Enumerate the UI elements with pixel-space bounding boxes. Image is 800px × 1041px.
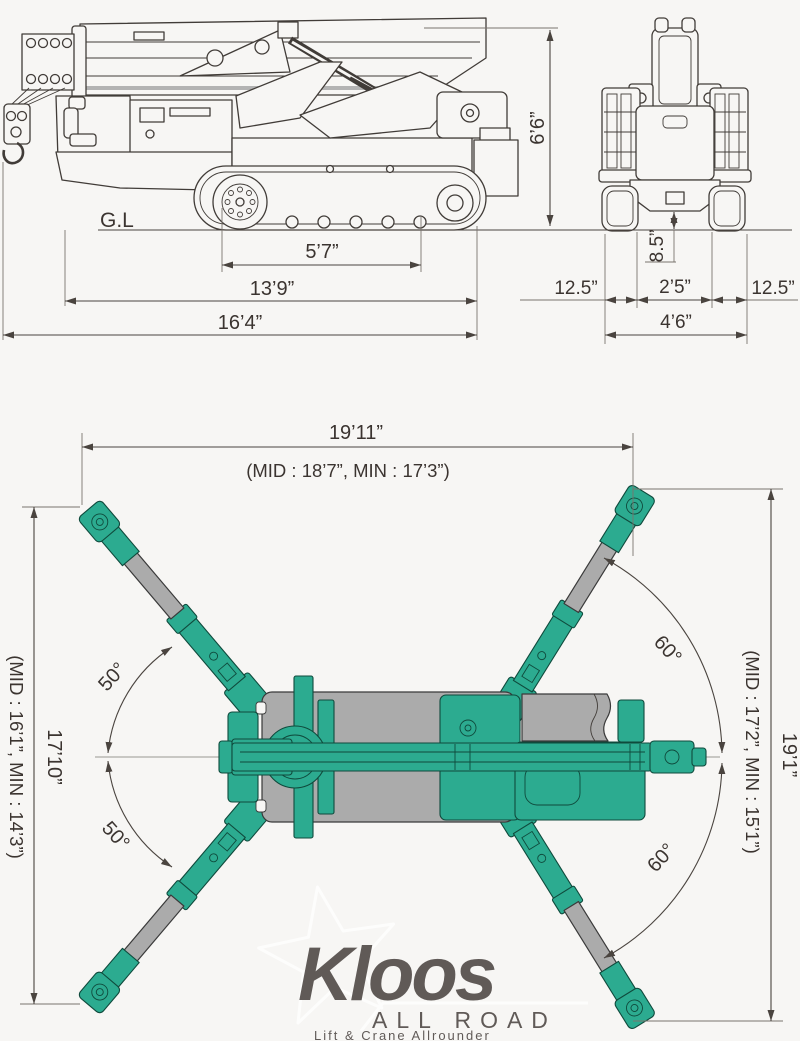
right-track-width-dim-label: 12.5” <box>751 278 794 299</box>
outrigger-span-right-sub-label: (MID : 17’2”, MIN : 15’1”) <box>742 650 763 854</box>
outrigger-span-top-label: 19’11” <box>329 422 383 444</box>
outrigger-span-right-label: 19’1” <box>778 733 800 777</box>
outrigger-span-left-label: 17’10” <box>43 729 65 785</box>
ground-clearance-dim-label: 8.5” <box>647 230 668 263</box>
frame-length-dim-label: 13’9” <box>250 278 294 300</box>
diagram-svg: Kloos ALL ROAD Lift & Crane Allrounder <box>0 0 800 1041</box>
outrigger-span-left-sub-label: (MID : 16’1”, MIN : 14’3”) <box>6 655 27 859</box>
outrigger-rear-right <box>491 790 657 1030</box>
track-gap-dim-label: 2’5” <box>659 277 691 298</box>
hook-icon <box>4 143 23 163</box>
outrigger-front-right <box>491 483 657 723</box>
outrigger-span-top-sub-label: (MID : 18’7”, MIN : 17’3”) <box>246 460 450 481</box>
overall-length-dim-label: 16’4” <box>218 312 262 334</box>
ground-level-label: G.L <box>100 209 134 232</box>
front-view-sketch <box>599 18 751 231</box>
front-left-angle-label: 50° <box>94 658 131 695</box>
brand-watermark: Kloos ALL ROAD Lift & Crane Allrounder <box>259 887 588 1041</box>
height-dim-label: 6’6” <box>527 111 549 144</box>
rear-right-angle-label: 60° <box>643 839 680 876</box>
watermark-tagline: Lift & Crane Allrounder <box>314 1028 491 1041</box>
crane-spec-diagram: Kloos ALL ROAD Lift & Crane Allrounder <box>0 0 800 1041</box>
left-track-width-dim-label: 12.5” <box>554 278 597 299</box>
overall-width-dim-label: 4’6” <box>660 312 692 333</box>
front-right-angle-label: 60° <box>649 631 686 668</box>
side-view-sketch <box>4 18 518 230</box>
track-length-dim-label: 5’7” <box>305 241 338 263</box>
